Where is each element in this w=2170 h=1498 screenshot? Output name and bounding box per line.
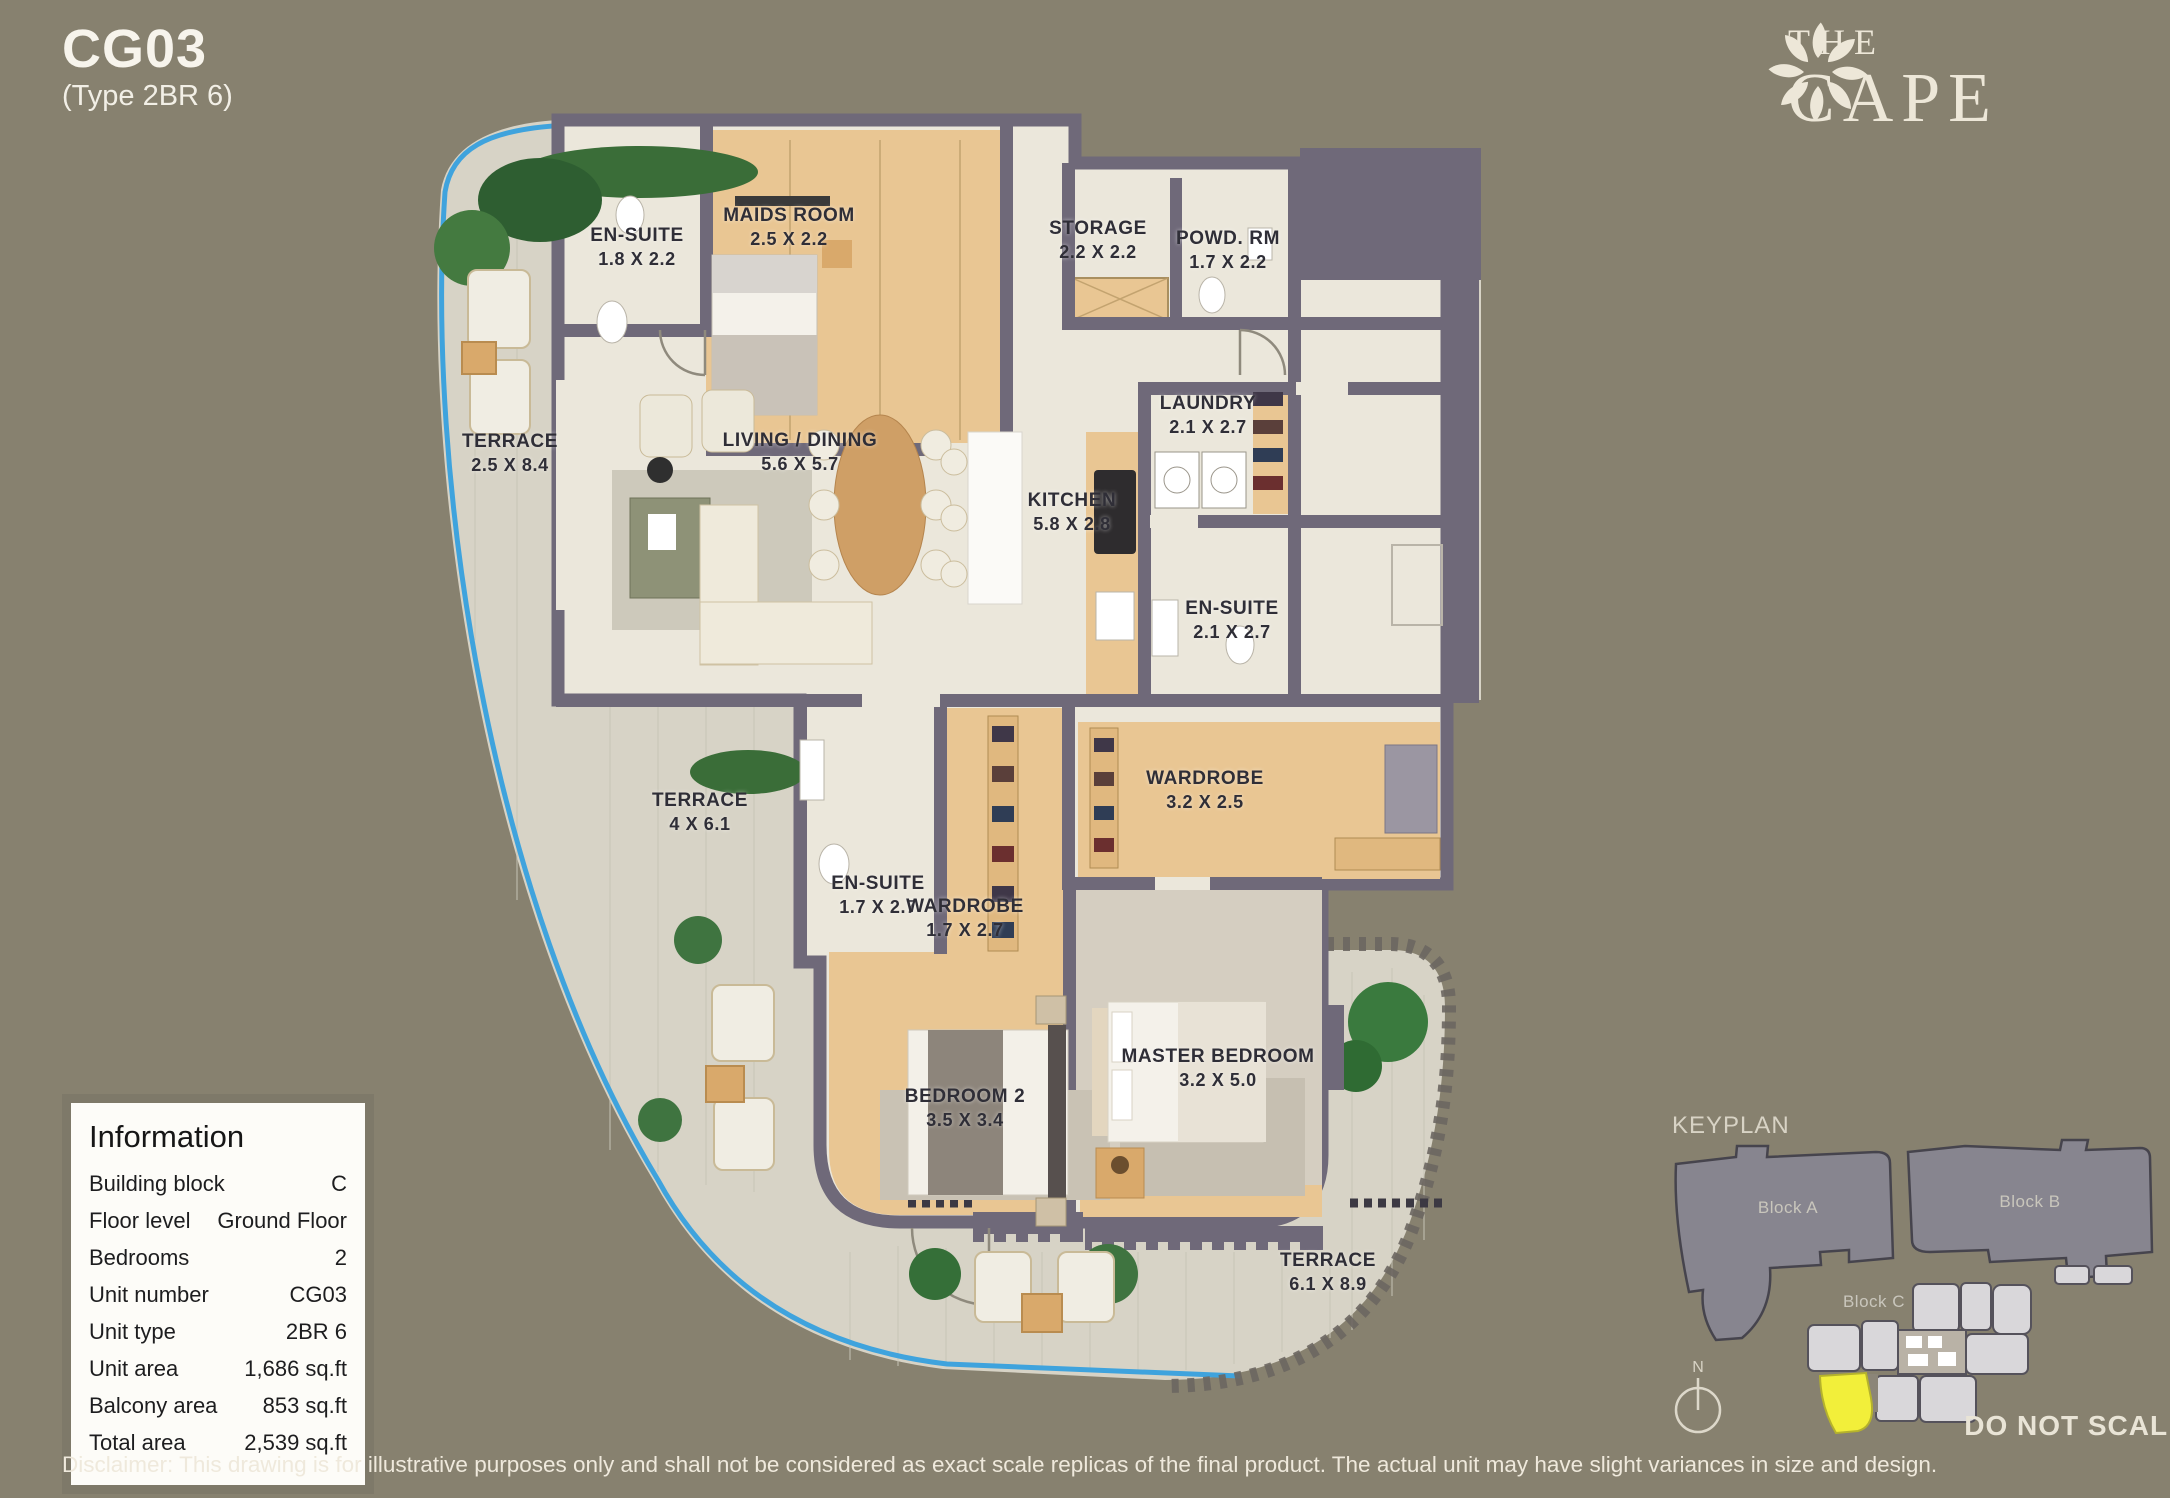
room-name: TERRACE: [1280, 1249, 1376, 1273]
compass-icon: [1676, 1378, 1720, 1432]
room-dims: 1.8 X 2.2: [590, 248, 683, 271]
information-title: Information: [89, 1119, 347, 1155]
room-dims: 2.5 X 2.2: [723, 228, 855, 251]
info-value: 1,686 sq.ft: [244, 1356, 347, 1382]
room-dims: 2.2 X 2.2: [1049, 241, 1147, 264]
keyplan-title: KEYPLAN: [1672, 1112, 1790, 1140]
keyplan-label-block-c: Block C: [1843, 1292, 1905, 1312]
room-label-wardrobe-1: WARDROBE 1.7 X 2.7: [906, 895, 1024, 941]
room-dims: 3.2 X 2.5: [1146, 791, 1264, 814]
info-label: Unit area: [89, 1356, 178, 1382]
room-name: POWD. RM: [1176, 227, 1280, 251]
page-subtitle: (Type 2BR 6): [62, 80, 233, 113]
info-row-building-block: Building block C: [89, 1171, 347, 1197]
brand-logo: THE CAPE: [1762, 16, 1999, 134]
room-name: KITCHEN: [1028, 489, 1117, 513]
room-label-powder-room: POWD. RM 1.7 X 2.2: [1176, 227, 1280, 273]
room-name: MASTER BEDROOM: [1121, 1045, 1314, 1069]
room-dims: 4 X 6.1: [652, 813, 748, 836]
keyplan-label-block-b: Block B: [1999, 1192, 2060, 1212]
room-label-terrace-middle: TERRACE 4 X 6.1: [652, 789, 748, 835]
floorplan-sheet: CG03 (Type 2BR 6) THE CAPE EN-SUITE 1.8 …: [0, 0, 2170, 1498]
room-dims: 5.8 X 2.8: [1028, 513, 1117, 536]
info-label: Balcony area: [89, 1393, 217, 1419]
room-name: WARDROBE: [906, 895, 1024, 919]
info-label: Unit type: [89, 1319, 176, 1345]
room-name: TERRACE: [652, 789, 748, 813]
info-row-bedrooms: Bedrooms 2: [89, 1245, 347, 1271]
room-label-terrace-bottom: TERRACE 6.1 X 8.9: [1280, 1249, 1376, 1295]
room-name: WARDROBE: [1146, 767, 1264, 791]
room-label-ensuite-2: EN-SUITE 2.1 X 2.7: [1185, 597, 1278, 643]
info-value: 2BR 6: [286, 1319, 347, 1345]
room-dims: 2.1 X 2.7: [1160, 416, 1256, 439]
page-title: CG03: [62, 18, 207, 80]
room-dims: 1.7 X 2.7: [906, 919, 1024, 942]
room-dims: 3.2 X 5.0: [1121, 1069, 1314, 1092]
info-value: 2: [335, 1245, 347, 1271]
info-label: Floor level: [89, 1208, 190, 1234]
information-panel: Information Building block C Floor level…: [62, 1094, 374, 1494]
room-label-wardrobe-2: WARDROBE 3.2 X 2.5: [1146, 767, 1264, 813]
room-label-living-dining: LIVING / DINING 5.6 X 5.7: [723, 429, 878, 475]
room-name: TERRACE: [462, 430, 558, 454]
room-dims: 2.1 X 2.7: [1185, 621, 1278, 644]
room-dims: 6.1 X 8.9: [1280, 1273, 1376, 1296]
room-dims: 5.6 X 5.7: [723, 453, 878, 476]
info-row-balcony-area: Balcony area 853 sq.ft: [89, 1393, 347, 1419]
disclaimer-text: Disclaimer: This drawing is for illustra…: [62, 1452, 2122, 1478]
info-row-unit-area: Unit area 1,686 sq.ft: [89, 1356, 347, 1382]
room-name: MAIDS ROOM: [723, 204, 855, 228]
keyplan-highlighted-unit: [1820, 1373, 1872, 1433]
room-label-maids-room: MAIDS ROOM 2.5 X 2.2: [723, 204, 855, 250]
info-row-unit-number: Unit number CG03: [89, 1282, 347, 1308]
room-dims: 1.7 X 2.2: [1176, 251, 1280, 274]
room-label-terrace-left: TERRACE 2.5 X 8.4: [462, 430, 558, 476]
flower-icon: [1762, 16, 1874, 128]
room-dims: 2.5 X 8.4: [462, 454, 558, 477]
room-name: LAUNDRY: [1160, 392, 1256, 416]
room-dims: 3.5 X 3.4: [905, 1109, 1025, 1132]
compass-north-label: N: [1692, 1359, 1704, 1377]
info-label: Building block: [89, 1171, 225, 1197]
room-name: BEDROOM 2: [905, 1085, 1025, 1109]
room-name: EN-SUITE: [1185, 597, 1278, 621]
info-value: 853 sq.ft: [263, 1393, 347, 1419]
info-value: CG03: [290, 1282, 347, 1308]
info-value: Ground Floor: [217, 1208, 347, 1234]
keyplan-drawing: [1676, 1140, 2152, 1433]
room-name: LIVING / DINING: [723, 429, 878, 453]
room-label-storage: STORAGE 2.2 X 2.2: [1049, 217, 1147, 263]
room-label-kitchen: KITCHEN 5.8 X 2.8: [1028, 489, 1117, 535]
info-row-floor-level: Floor level Ground Floor: [89, 1208, 347, 1234]
room-label-master-bedroom: MASTER BEDROOM 3.2 X 5.0: [1121, 1045, 1314, 1091]
info-label: Unit number: [89, 1282, 209, 1308]
room-name: EN-SUITE: [590, 224, 683, 248]
do-not-scale-note: DO NOT SCALE: [1964, 1410, 2170, 1442]
info-row-unit-type: Unit type 2BR 6: [89, 1319, 347, 1345]
room-name: EN-SUITE: [831, 872, 924, 896]
keyplan-label-block-a: Block A: [1758, 1198, 1818, 1218]
room-label-ensuite-maids: EN-SUITE 1.8 X 2.2: [590, 224, 683, 270]
info-value: C: [331, 1171, 347, 1197]
room-label-bedroom-2: BEDROOM 2 3.5 X 3.4: [905, 1085, 1025, 1131]
info-label: Bedrooms: [89, 1245, 189, 1271]
room-label-laundry: LAUNDRY 2.1 X 2.7: [1160, 392, 1256, 438]
room-name: STORAGE: [1049, 217, 1147, 241]
